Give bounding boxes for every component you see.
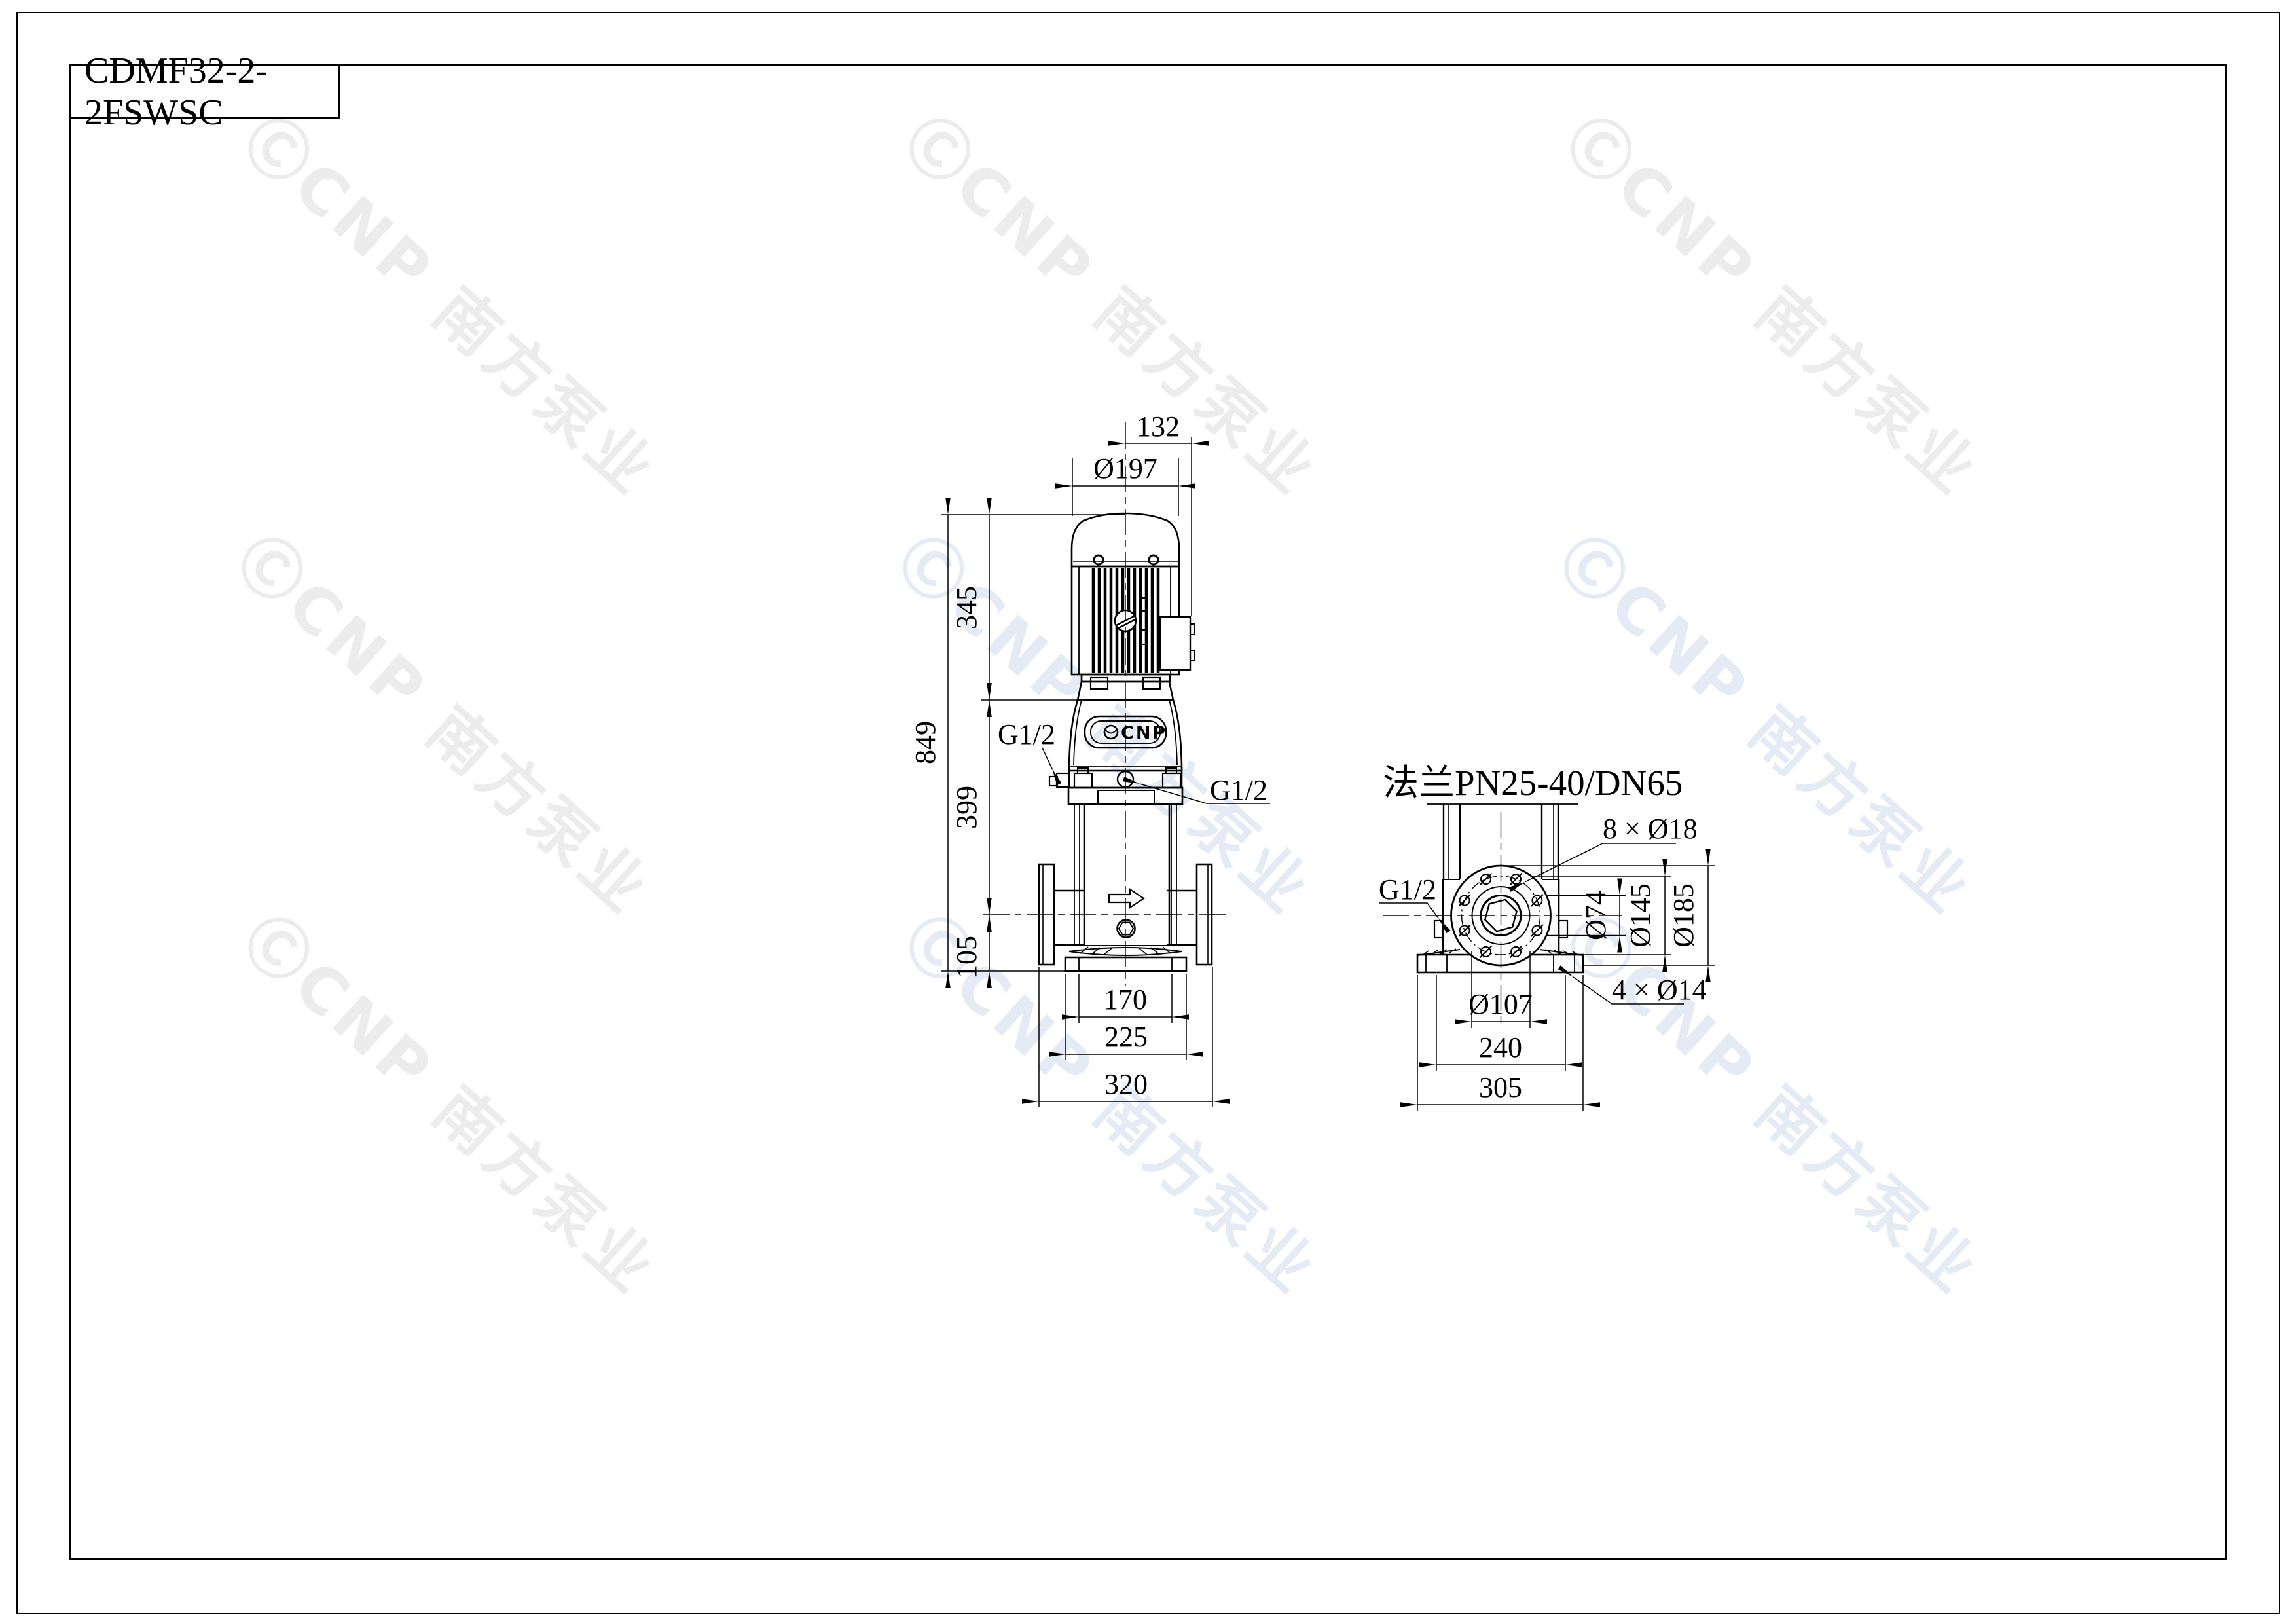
dim-flange-bolt-holes: 8 × Ø18 [1603, 813, 1698, 845]
front-view-drawing: CNP [909, 411, 1270, 1107]
dim-base-holes: 4 × Ø14 [1612, 974, 1707, 1006]
dim-flange-od: Ø185 [1667, 883, 1700, 948]
dim-bore-dia: Ø74 [1580, 891, 1612, 940]
drawing-sheet: ⒸCNP 南方泵业ⒸCNP 南方泵业ⒸCNP 南方泵业ⒸCNP 南方泵业ⒸCNP… [0, 0, 2296, 1624]
pump-logo-text: CNP [1121, 723, 1167, 743]
model-title: CDMF32-2-2FSWSC [84, 50, 338, 134]
dim-bolt-circle-dia: Ø145 [1624, 883, 1656, 948]
dim-port-left: G1/2 [998, 718, 1055, 750]
dim-port-right: G1/2 [1210, 774, 1267, 806]
dim-total-height: 849 [909, 721, 941, 764]
side-view-drawing: 法兰PN25-40/DN65 8 × Ø18 G1/2 4 × Ø14 Ø74 … [1379, 763, 1715, 1111]
dim-base-width: 225 [1104, 1021, 1148, 1053]
dim-side-base-width: 305 [1479, 1071, 1522, 1103]
dim-drain-port: G1/2 [1379, 874, 1436, 906]
dim-base-height: 105 [951, 936, 983, 979]
dim-motor-height: 345 [951, 586, 983, 629]
dim-base-bolt-span: 240 [1479, 1031, 1522, 1063]
dim-port-span: 320 [1104, 1068, 1148, 1100]
title-box: CDMF32-2-2FSWSC [69, 64, 340, 119]
dim-foot-width: 170 [1104, 984, 1147, 1016]
dim-mid-height: 399 [951, 786, 983, 829]
dim-width-top: 132 [1137, 411, 1180, 443]
flange-section-title: 法兰PN25-40/DN65 [1383, 763, 1683, 803]
dim-raised-face-dia: Ø107 [1468, 988, 1533, 1020]
pump-drawing: CNP [0, 0, 2296, 1624]
